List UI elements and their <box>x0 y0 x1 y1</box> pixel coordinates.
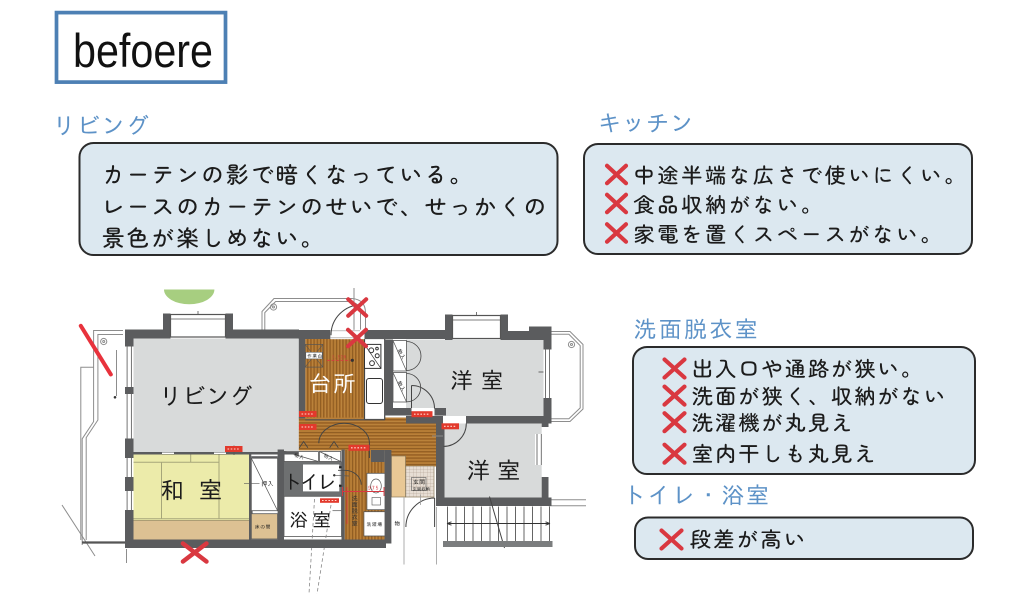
svg-text:befoere: befoere <box>73 24 213 77</box>
